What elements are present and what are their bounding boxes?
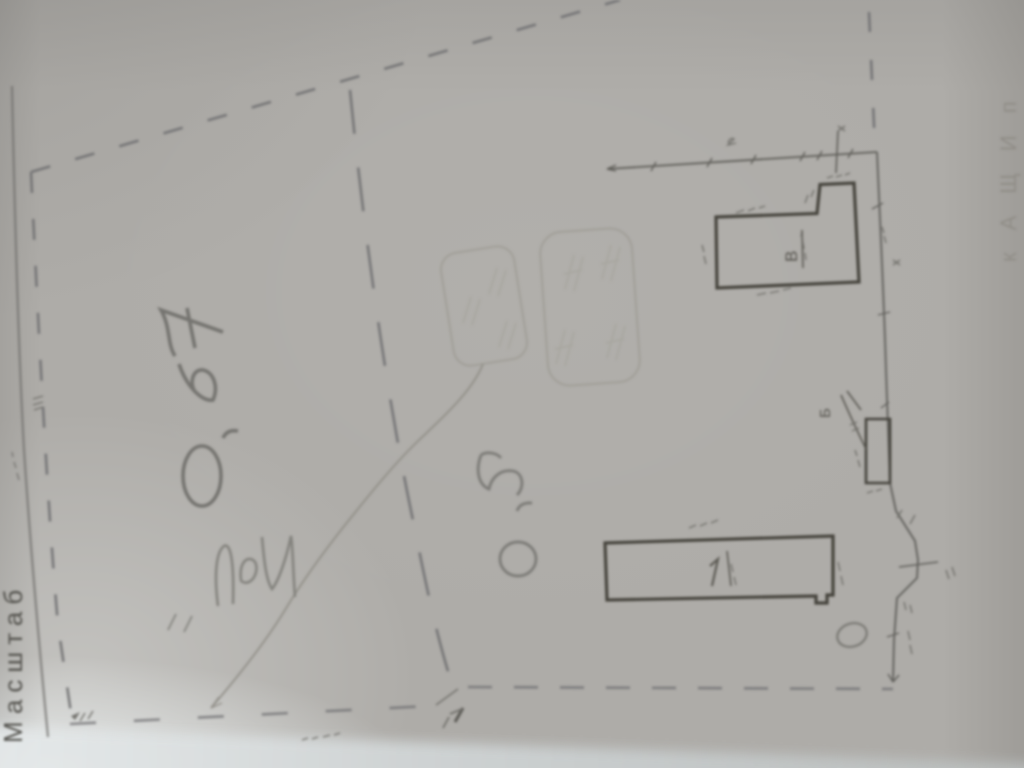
svg-text:Б: Б	[817, 408, 834, 418]
svg-text:В: В	[782, 251, 801, 262]
svg-text:кАЩИп: кАЩИп	[996, 79, 1021, 262]
svg-text:Масштаб: Масштаб	[0, 583, 28, 743]
